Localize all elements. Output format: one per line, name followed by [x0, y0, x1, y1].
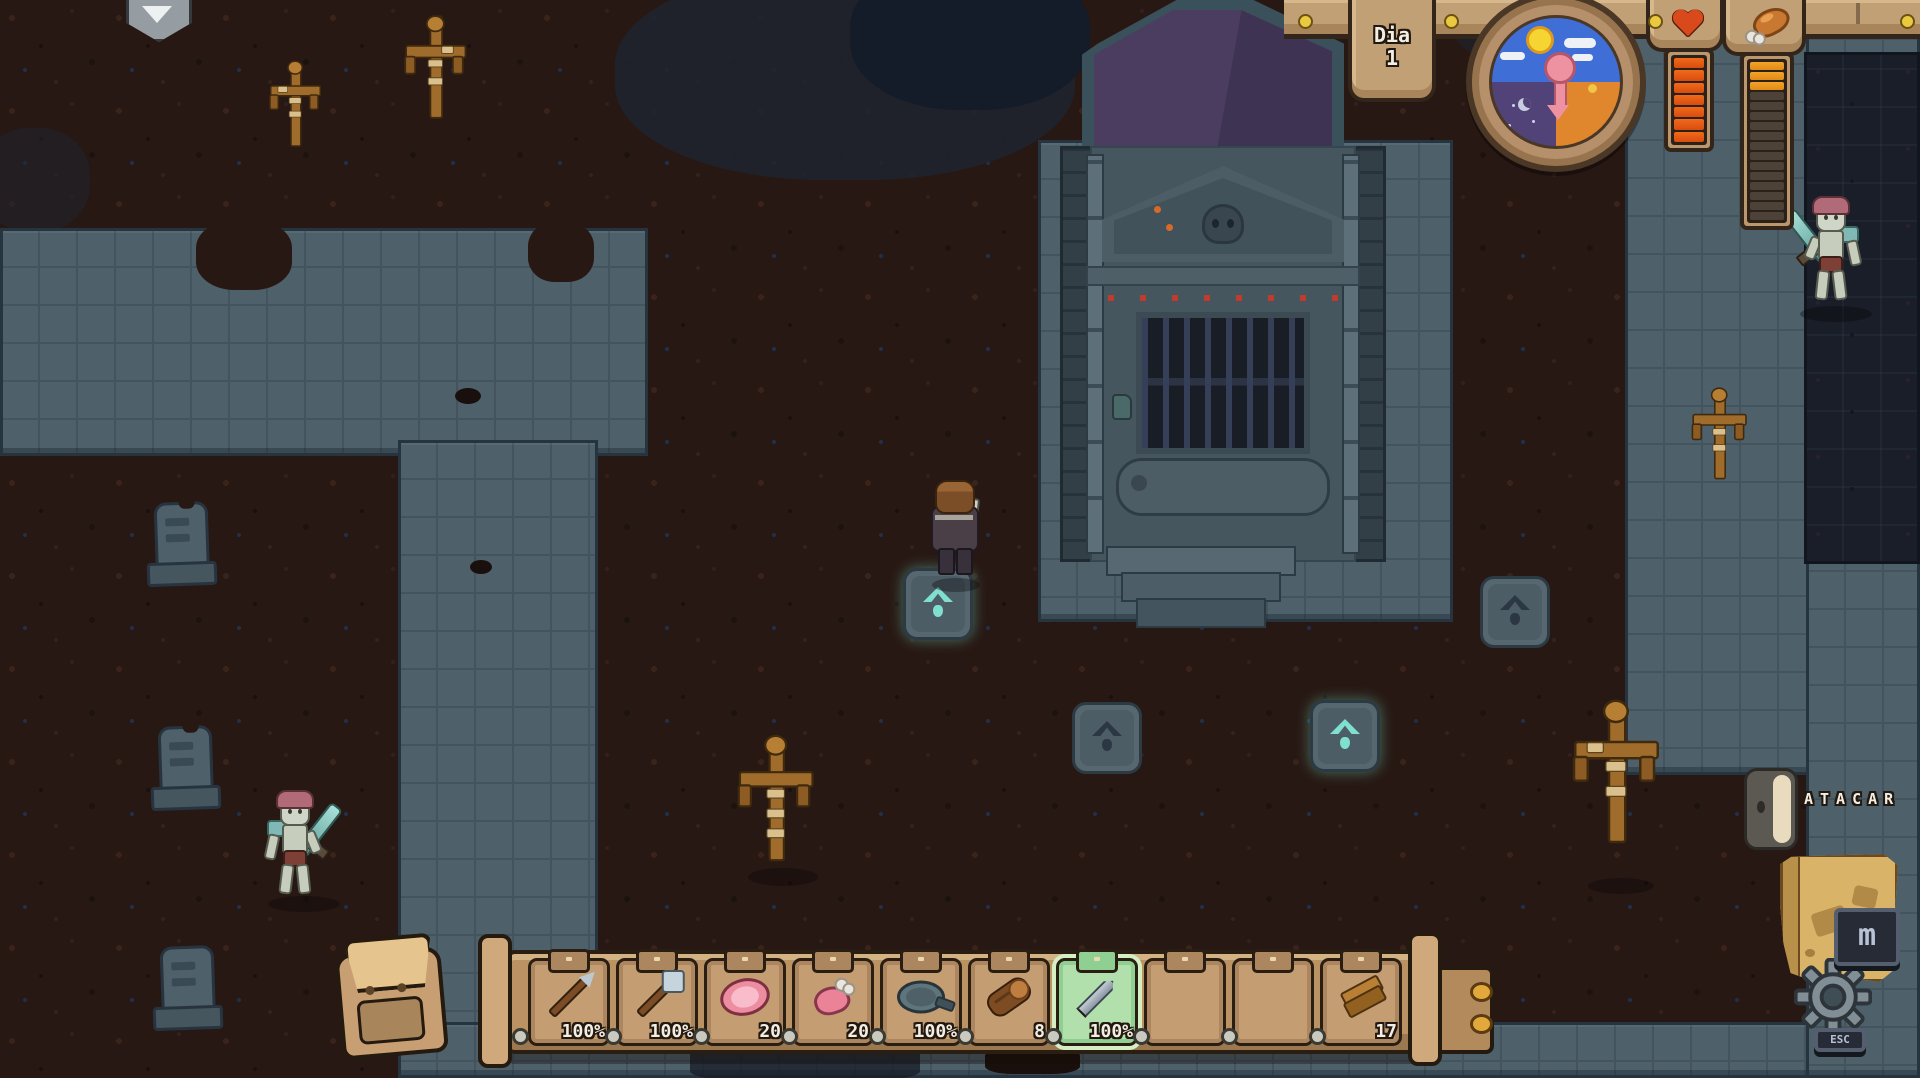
map-key-badge[interactable]: m [1834, 908, 1900, 966]
settings-key-badge[interactable]: ESC [1814, 1028, 1866, 1052]
skeleton-enemy[interactable] [252, 790, 336, 912]
dirt-clump [528, 222, 594, 282]
sun-icon [1526, 26, 1554, 54]
wood-planks-icon [1341, 983, 1381, 1011]
slot-value: 100% [562, 1021, 605, 1042]
tomb-jug [1112, 394, 1132, 420]
game-viewport[interactable]: Dia 1 [0, 0, 1920, 1078]
pressure-plate-active[interactable] [1310, 700, 1380, 772]
clock-pointer-tip [1547, 105, 1569, 120]
hunger-gauge [1740, 52, 1794, 230]
slot-value: 17 [1375, 1021, 1397, 1042]
pressure-plate[interactable] [1072, 702, 1142, 774]
slot-value: 20 [847, 1021, 869, 1042]
mouse-button-icon [1744, 768, 1798, 850]
washer-icon [1133, 1028, 1150, 1045]
gold-nail-icon [1648, 14, 1663, 29]
hotbar-slot-6[interactable]: 8 [968, 958, 1050, 1046]
day-number: 1 [1352, 47, 1432, 70]
hotbar-slot-2[interactable]: 100% [616, 958, 698, 1046]
skeleton-helm [1812, 196, 1850, 215]
gravestone [145, 501, 214, 587]
wood-log-icon [983, 973, 1036, 1021]
washer-icon [605, 1028, 622, 1045]
gold-knob-icon [1470, 982, 1493, 1002]
hotbar-slot-8[interactable] [1144, 958, 1226, 1046]
dark-soil-patch [0, 128, 90, 232]
shadow [1588, 878, 1654, 894]
tomb-gate-window [1136, 312, 1310, 454]
ground-blemish [455, 388, 481, 404]
sword-icon [1076, 976, 1118, 1018]
hotbar-slot-9[interactable] [1232, 958, 1314, 1046]
gold-nail-icon [1298, 14, 1313, 29]
dusk-moon-icon [1588, 84, 1597, 93]
shovel-icon [636, 976, 678, 1018]
down-arrow-sign [126, 0, 192, 42]
washer-icon [693, 1028, 710, 1045]
washer-icon [1309, 1028, 1326, 1045]
hotbar-right-cap [1408, 932, 1442, 1066]
tomb-slab [1116, 458, 1330, 516]
tomb-frieze-dots [1100, 292, 1346, 304]
skeleton-enemy[interactable] [1790, 196, 1874, 318]
raw-meat-icon [717, 974, 774, 1021]
pressure-plate[interactable] [1480, 576, 1550, 648]
hotbar-slot-7-selected[interactable]: 100% [1056, 958, 1138, 1046]
washer-icon [512, 1028, 529, 1045]
down-arrow-icon [142, 6, 172, 23]
washer-icon [957, 1028, 974, 1045]
washer-icon [1221, 1028, 1238, 1045]
raw-drumstick-icon [810, 978, 857, 1017]
tomb-steps [1108, 546, 1294, 626]
player-hair [935, 480, 975, 514]
attack-prompt-label: ATACAR [1804, 790, 1900, 808]
slot-value: 100% [914, 1021, 957, 1042]
heart-icon [1672, 10, 1704, 38]
star-icon [1508, 124, 1511, 127]
drumstick-icon [1740, 3, 1793, 50]
cloud-icon [1572, 54, 1593, 61]
wooden-cross [1692, 393, 1743, 481]
wooden-cross [739, 743, 809, 864]
shadow [748, 868, 818, 886]
dirt-clump [196, 220, 292, 290]
day-night-clock [1466, 0, 1646, 172]
cloud-icon [1564, 38, 1596, 48]
spear-icon [548, 976, 590, 1018]
star-icon [1512, 104, 1515, 107]
slot-value: 100% [650, 1021, 693, 1042]
day-label: Dia [1352, 24, 1432, 47]
star-icon [1532, 120, 1535, 123]
slot-value: 100% [1090, 1021, 1133, 1042]
gear-icon[interactable] [1794, 958, 1872, 1036]
hotbar-slot-3[interactable]: 20 [704, 958, 786, 1046]
frying-pan-icon [897, 981, 945, 1014]
hotbar-slot-10[interactable]: 17 [1320, 958, 1402, 1046]
hunger-plaque [1722, 0, 1806, 56]
ground-blemish [470, 560, 492, 574]
gold-knob-icon [1470, 1014, 1493, 1034]
hotbar-slot-4[interactable]: 20 [792, 958, 874, 1046]
backpack-button[interactable] [333, 931, 453, 1060]
health-gauge [1664, 48, 1714, 152]
slot-value: 20 [759, 1021, 781, 1042]
wooden-cross [405, 22, 463, 121]
washer-icon [781, 1028, 798, 1045]
slot-value: 8 [1034, 1021, 1045, 1042]
hotbar-left-cap [478, 934, 512, 1068]
cloud-icon [1500, 52, 1525, 60]
hotbar-slot-1[interactable]: 100% [528, 958, 610, 1046]
gravestone [151, 945, 220, 1031]
skeleton-helm [276, 790, 314, 809]
gold-nail-icon [1900, 14, 1915, 29]
gravestone [149, 725, 218, 811]
clock-dial [1489, 15, 1623, 149]
player-character [924, 480, 982, 592]
moon-icon [1518, 98, 1531, 111]
clock-pointer-ball [1544, 52, 1576, 84]
skull-emblem [1202, 204, 1244, 244]
mausoleum [1060, 146, 1386, 562]
washer-icon [869, 1028, 886, 1045]
wooden-cross [270, 66, 318, 149]
wooden-cross [1574, 708, 1654, 846]
day-plaque: Dia 1 [1348, 0, 1436, 102]
washer-icon [1045, 1028, 1062, 1045]
gold-nail-icon [1444, 14, 1459, 29]
hotbar-slot-5[interactable]: 100% [880, 958, 962, 1046]
